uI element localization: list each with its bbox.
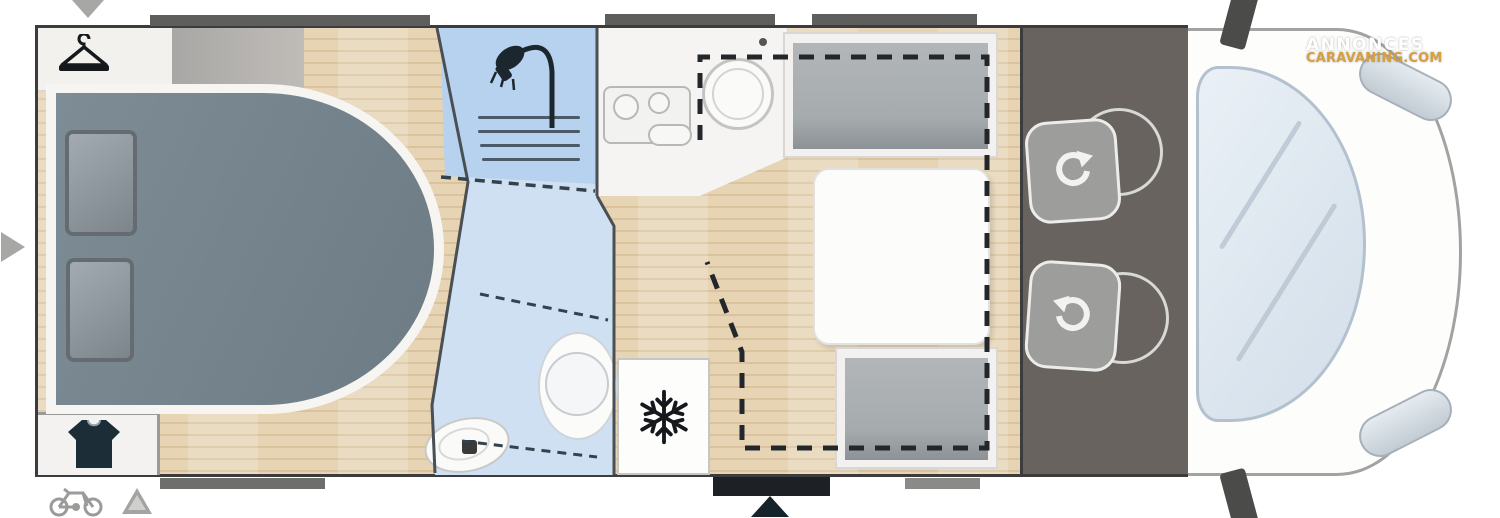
window-top-dinette [812, 14, 977, 25]
entry-arrow-icon [751, 496, 789, 517]
shirt-icon [68, 418, 120, 470]
toilet-seat [545, 352, 609, 416]
rear-bench-cushion [793, 43, 988, 149]
triangle-marker-icon [122, 488, 152, 514]
shower-head-icon [488, 36, 568, 131]
wardrobe-top [38, 28, 174, 92]
watermark-line1: ANNONCES [1306, 38, 1456, 52]
hanger-icon [58, 34, 110, 76]
pillow [65, 130, 137, 236]
dinette-table [813, 168, 990, 345]
cab-seat-top [1024, 117, 1123, 225]
watermark: ANNONCES CARAVANING.COM [1306, 38, 1456, 66]
entry-door [713, 477, 830, 496]
right-arrow-icon [1, 232, 25, 262]
cooktop-controls [648, 124, 692, 146]
window-top-kitchen [605, 14, 775, 25]
down-arrow-icon [72, 0, 104, 18]
shower-grate [482, 158, 580, 161]
front-bench-cushion [845, 358, 988, 460]
cab-floor [1020, 28, 1191, 474]
wardrobe-bottom [38, 412, 160, 475]
shower-grate [480, 144, 580, 147]
burner [613, 94, 639, 120]
refrigerator [617, 358, 710, 475]
washbasin-faucet [462, 440, 477, 454]
swivel-arrow-icon [1050, 293, 1097, 340]
rear-bench [783, 32, 998, 158]
burner [648, 92, 670, 114]
swivel-arrow-icon [1050, 148, 1097, 195]
motorhome-floorplan: ANNONCES CARAVANING.COM [0, 0, 1500, 518]
window-bottom-bedroom [160, 478, 325, 489]
cab-seat-bottom [1023, 259, 1122, 373]
window-bottom-dinette [905, 478, 980, 489]
overhead-cabinet [172, 28, 304, 88]
kitchen-faucet-icon [733, 34, 773, 68]
snowflake-icon [635, 388, 693, 446]
pillow [66, 258, 134, 362]
front-bench [835, 347, 998, 469]
window-top-bedroom [150, 15, 430, 26]
kitchen-sink-bowl [712, 68, 764, 120]
watermark-line2: CARAVANING.COM [1306, 52, 1456, 66]
bicycle-icon [46, 484, 124, 518]
